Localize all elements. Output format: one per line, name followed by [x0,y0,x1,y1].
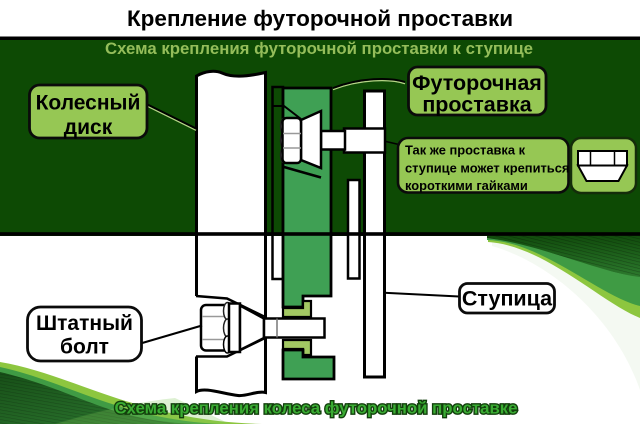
svg-text:болт: болт [60,336,109,359]
svg-text:Ступица: Ступица [462,287,553,311]
svg-text:Штатный: Штатный [36,312,133,335]
svg-text:Крепление футорочной проставки: Крепление футорочной проставки [127,6,513,31]
svg-text:Колесный: Колесный [36,92,141,115]
svg-text:диск: диск [64,116,113,139]
svg-text:Схема крепления футорочной про: Схема крепления футорочной проставки к с… [105,39,533,58]
svg-text:Схема крепления колеса футороч: Схема крепления колеса футорочной проста… [114,399,517,418]
svg-text:Футорочная: Футорочная [412,71,542,95]
svg-text:ступице может крепиться: ступице может крепиться [405,161,569,176]
svg-text:Так же проставка к: Так же проставка к [405,143,526,158]
svg-text:короткими гайками: короткими гайками [405,178,528,193]
svg-text:проставка: проставка [422,93,532,117]
